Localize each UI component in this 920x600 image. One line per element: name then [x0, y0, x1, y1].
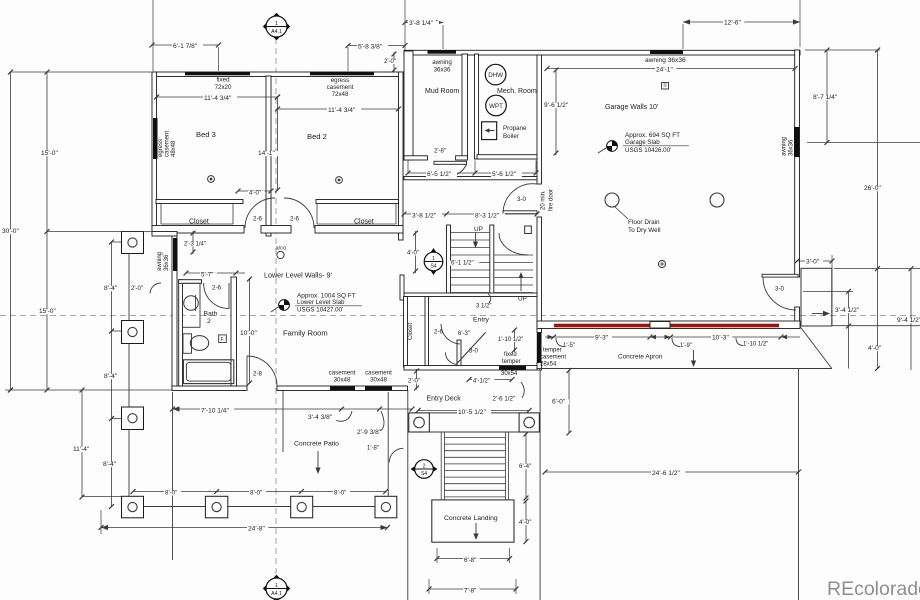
svg-text:6'-4": 6'-4": [519, 463, 531, 470]
svg-text:4'-0": 4'-0": [519, 519, 531, 526]
svg-text:48x48: 48x48: [171, 140, 177, 157]
svg-text:1'-10 1/2": 1'-10 1/2": [743, 342, 768, 348]
svg-text:3'-8 1/2": 3'-8 1/2": [412, 213, 437, 220]
svg-text:3'-8 1/4": 3'-8 1/4": [409, 20, 434, 27]
svg-text:A4.1: A4.1: [271, 29, 282, 35]
svg-text:72x48: 72x48: [332, 91, 349, 98]
svg-text:30'-0": 30'-0": [2, 228, 19, 235]
svg-text:9'-3": 9'-3": [595, 335, 609, 342]
svg-text:Bed 3: Bed 3: [196, 130, 216, 139]
svg-text:5'-7": 5'-7": [201, 272, 213, 279]
svg-text:9'-6 1/2": 9'-6 1/2": [544, 102, 569, 109]
svg-text:A4.1: A4.1: [271, 591, 282, 597]
svg-text:casement: casement: [327, 84, 354, 91]
svg-text:2'-0": 2'-0": [131, 286, 143, 292]
svg-text:7'-8": 7'-8": [464, 588, 476, 595]
svg-text:USGS 10427.00': USGS 10427.00': [297, 307, 343, 314]
svg-text:3'-4 3/8": 3'-4 3/8": [308, 414, 333, 421]
svg-text:Closet: Closet: [189, 219, 209, 226]
svg-text:6'-1 1/2": 6'-1 1/2": [451, 260, 474, 267]
svg-text:a/co: a/co: [276, 246, 287, 252]
svg-text:2'-0": 2'-0": [384, 59, 396, 65]
svg-text:Bath: Bath: [204, 311, 218, 318]
svg-text:72x20: 72x20: [215, 84, 232, 91]
svg-text:2'-0": 2'-0": [408, 379, 420, 385]
svg-text:8'-4": 8'-4": [104, 285, 118, 292]
svg-text:2: 2: [423, 464, 426, 470]
svg-text:3-0: 3-0: [775, 286, 785, 293]
svg-text:temper: temper: [502, 359, 521, 365]
svg-text:Lower Level Walls- 9': Lower Level Walls- 9': [264, 271, 332, 280]
svg-text:7'-10 1/4": 7'-10 1/4": [201, 408, 229, 415]
svg-text:2-8: 2-8: [253, 371, 263, 378]
svg-text:1: 1: [432, 256, 435, 262]
svg-text:1: 1: [275, 21, 278, 27]
svg-text:1'-9": 1'-9": [680, 343, 692, 349]
svg-text:12'-6": 12'-6": [724, 20, 741, 27]
svg-text:Closet: Closet: [408, 323, 414, 340]
svg-text:3 1/2": 3 1/2": [476, 304, 491, 310]
svg-text:14'-1": 14'-1": [258, 150, 275, 157]
svg-text:4'-1/2": 4'-1/2": [473, 379, 490, 385]
svg-text:casement: casement: [540, 355, 566, 361]
svg-text:1'-5": 1'-5": [563, 343, 575, 349]
svg-text:36x36: 36x36: [434, 67, 451, 74]
svg-text:6'-5 1/2": 6'-5 1/2": [427, 171, 452, 178]
svg-text:30x54: 30x54: [501, 371, 518, 377]
svg-text:temper: temper: [543, 348, 562, 354]
svg-text:1'-8": 1'-8": [367, 446, 379, 452]
svg-text:fixed: fixed: [504, 352, 517, 358]
svg-text:24'-1": 24'-1": [656, 67, 673, 74]
svg-text:3'-0": 3'-0": [806, 259, 820, 266]
svg-text:2-6: 2-6: [212, 285, 222, 292]
svg-text:F: F: [221, 337, 224, 343]
svg-text:Lower Level Slab: Lower Level Slab: [297, 299, 345, 306]
svg-text:Concrete Patio: Concrete Patio: [294, 441, 339, 448]
svg-text:8'-4": 8'-4": [103, 461, 117, 468]
svg-text:UP: UP: [518, 296, 527, 303]
svg-text:26'-0": 26'-0": [864, 185, 881, 192]
svg-text:24'-8": 24'-8": [248, 526, 265, 533]
svg-text:9'-4 1/2": 9'-4 1/2": [897, 317, 920, 324]
svg-text:Mud Room: Mud Room: [425, 88, 459, 95]
svg-text:36x36: 36x36: [164, 254, 170, 271]
svg-text:2-6: 2-6: [253, 216, 263, 223]
svg-text:Floor Drain: Floor Drain: [628, 219, 660, 226]
svg-text:2-6: 2-6: [434, 329, 444, 336]
svg-text:3-0: 3-0: [469, 348, 479, 355]
svg-text:2'-9 3/8": 2'-9 3/8": [357, 429, 382, 436]
svg-text:Garage Slab: Garage Slab: [625, 139, 660, 146]
svg-text:15'-0": 15'-0": [39, 308, 56, 315]
svg-text:Closet: Closet: [354, 219, 374, 226]
svg-text:4'-0": 4'-0": [249, 191, 261, 197]
svg-text:S4: S4: [421, 471, 427, 477]
svg-text:awning: awning: [432, 59, 452, 66]
svg-text:6'-3": 6'-3": [458, 331, 470, 337]
svg-text:5'-8 3/8": 5'-8 3/8": [358, 44, 383, 51]
svg-text:10'-3": 10'-3": [712, 335, 729, 342]
svg-text:Approx. 694 SQ FT: Approx. 694 SQ FT: [625, 132, 680, 139]
svg-text:awning: awning: [782, 137, 788, 156]
svg-text:Garage Walls 10': Garage Walls 10': [605, 104, 658, 111]
svg-text:4'-0": 4'-0": [407, 251, 419, 257]
svg-text:20 min.: 20 min.: [541, 190, 547, 210]
svg-text:11'-4": 11'-4": [73, 446, 90, 453]
svg-text:REcolorado: REcolorado: [827, 578, 920, 600]
svg-text:3-0: 3-0: [517, 196, 527, 203]
svg-text:WPT: WPT: [489, 103, 503, 110]
svg-text:2'-3 1/4": 2'-3 1/4": [184, 242, 206, 248]
svg-text:1: 1: [275, 583, 278, 589]
svg-text:1'-10 1/2": 1'-10 1/2": [498, 337, 523, 343]
svg-text:fire door: fire door: [549, 189, 555, 211]
svg-text:casement: casement: [329, 370, 356, 377]
svg-text:casement: casement: [365, 370, 392, 377]
svg-text:5'-6 1/2": 5'-6 1/2": [492, 171, 517, 178]
svg-text:10'-0": 10'-0": [240, 330, 257, 337]
svg-text:30x48: 30x48: [370, 377, 387, 384]
svg-text:24'-6 1/2": 24'-6 1/2": [652, 470, 680, 477]
svg-text:2'-8": 2'-8": [434, 149, 446, 155]
svg-text:10'-5 1/2": 10'-5 1/2": [458, 409, 486, 416]
svg-text:fixed: fixed: [216, 77, 230, 84]
svg-text:awning: awning: [157, 252, 163, 271]
svg-text:UP: UP: [474, 226, 483, 233]
svg-text:Boiler: Boiler: [503, 133, 519, 140]
svg-text:USGS 10426.00': USGS 10426.00': [625, 147, 671, 154]
svg-text:3'-4 1/2": 3'-4 1/2": [835, 307, 860, 314]
svg-text:DHW: DHW: [488, 72, 503, 79]
svg-text:8'-3 1/2": 8'-3 1/2": [475, 213, 500, 220]
svg-text:4'-0": 4'-0": [868, 345, 882, 352]
svg-text:egress: egress: [331, 77, 350, 84]
svg-text:Concrete Landing: Concrete Landing: [444, 515, 498, 522]
svg-text:36x36: 36x36: [789, 139, 795, 156]
svg-text:8'-0": 8'-0": [250, 490, 262, 497]
svg-text:8'-0": 8'-0": [334, 490, 346, 497]
svg-text:11'-4 3/4": 11'-4 3/4": [204, 95, 232, 102]
svg-text:30x48: 30x48: [334, 377, 351, 384]
svg-text:To Dry Well: To Dry Well: [628, 227, 661, 234]
svg-text:Entry Deck: Entry Deck: [427, 396, 462, 403]
svg-text:6'-1 7/8": 6'-1 7/8": [173, 43, 198, 50]
svg-text:Mech. Room: Mech. Room: [497, 88, 537, 95]
svg-text:awning 36x36: awning 36x36: [645, 57, 686, 64]
svg-text:2: 2: [207, 318, 211, 325]
svg-text:28x54: 28x54: [540, 362, 557, 368]
svg-text:Family Room: Family Room: [283, 329, 328, 338]
svg-text:2'-6 1/2": 2'-6 1/2": [493, 396, 516, 403]
svg-text:Concrete Apron: Concrete Apron: [618, 354, 663, 361]
svg-text:6'-0": 6'-0": [552, 399, 566, 406]
svg-text:8'-0": 8'-0": [165, 490, 177, 497]
svg-text:8'-4": 8'-4": [104, 373, 118, 380]
svg-text:15'-0": 15'-0": [41, 150, 58, 157]
svg-text:Bed 2: Bed 2: [307, 132, 327, 141]
svg-text:2-6: 2-6: [290, 216, 300, 223]
svg-text:8'-7 1/4": 8'-7 1/4": [813, 94, 838, 101]
svg-text:S4: S4: [430, 264, 436, 270]
svg-text:casement: casement: [165, 131, 171, 157]
svg-text:egress: egress: [158, 139, 164, 157]
svg-text:Entry: Entry: [473, 317, 489, 324]
svg-text:Propane: Propane: [503, 125, 527, 132]
svg-text:11'-4 3/4": 11'-4 3/4": [328, 107, 356, 114]
svg-text:6'-8": 6'-8": [464, 557, 476, 564]
